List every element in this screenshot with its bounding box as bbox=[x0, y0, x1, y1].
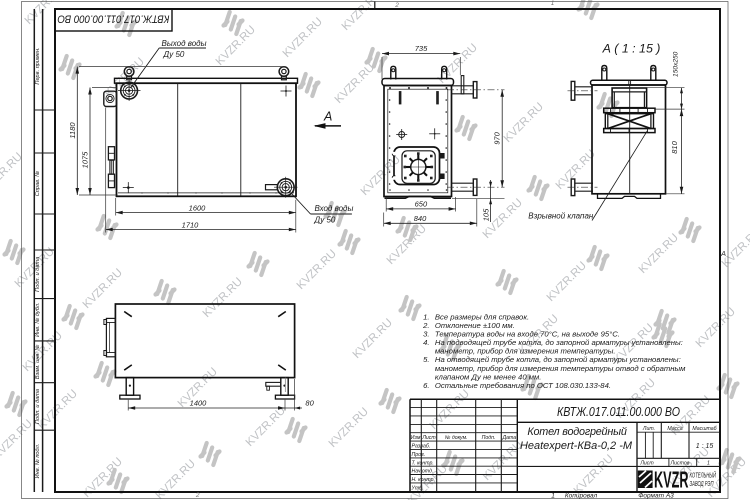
svg-text:Лист: Лист bbox=[639, 460, 654, 466]
svg-text:Выход воды: Выход воды bbox=[162, 39, 207, 48]
svg-text:2: 2 bbox=[195, 492, 200, 499]
svg-text:KVZR.RU: KVZR.RU bbox=[428, 388, 472, 432]
svg-text:Взам. инв. №: Взам. инв. № bbox=[35, 344, 41, 379]
svg-text:А ( 1 : 15 ): А ( 1 : 15 ) bbox=[602, 42, 661, 56]
svg-text:150х250: 150х250 bbox=[673, 51, 680, 77]
svg-text:КОТЕЛЬНЫЙ: КОТЕЛЬНЫЙ bbox=[690, 470, 717, 479]
svg-text:KVZR.RU: KVZR.RU bbox=[333, 62, 377, 106]
svg-text:1600: 1600 bbox=[189, 203, 207, 212]
svg-text:KVZR.RU: KVZR.RU bbox=[340, 0, 384, 33]
svg-text:KVZR.RU: KVZR.RU bbox=[637, 232, 681, 276]
svg-text:КВТЖ.017.011.00.000 ВО: КВТЖ.017.011.00.000 ВО bbox=[557, 404, 680, 419]
svg-text:А: А bbox=[720, 249, 726, 258]
svg-text:6.: 6. bbox=[423, 381, 429, 390]
svg-text:4.: 4. bbox=[423, 338, 429, 347]
svg-text:Подп. и дата: Подп. и дата bbox=[35, 257, 41, 292]
svg-text:Инв. № подл.: Инв. № подл. bbox=[35, 444, 41, 479]
svg-text:1400: 1400 bbox=[190, 399, 208, 408]
svg-text:Копировал: Копировал bbox=[565, 493, 598, 500]
svg-text:Инв. № дубл.: Инв. № дубл. bbox=[35, 302, 41, 336]
svg-text:735: 735 bbox=[415, 44, 428, 53]
svg-text:KVZR.RU: KVZR.RU bbox=[154, 458, 198, 500]
svg-text:Ду 50: Ду 50 bbox=[163, 50, 185, 59]
svg-text:КВТЖ.017.011.00.000 ВО: КВТЖ.017.011.00.000 ВО bbox=[57, 13, 169, 25]
svg-text:Масса: Масса bbox=[667, 426, 682, 432]
svg-text:1710: 1710 bbox=[182, 220, 200, 229]
svg-text:1: 1 bbox=[551, 1, 554, 7]
svg-text:80: 80 bbox=[305, 399, 314, 408]
svg-text:1 : 15: 1 : 15 bbox=[696, 443, 714, 450]
svg-text:KVZR.RU: KVZR.RU bbox=[201, 276, 245, 320]
svg-text:810: 810 bbox=[670, 140, 679, 153]
svg-text:Ду 50: Ду 50 bbox=[314, 216, 336, 225]
svg-text:Вход воды: Вход воды bbox=[315, 204, 354, 213]
svg-text:Листов: Листов bbox=[670, 460, 690, 466]
svg-text:650: 650 bbox=[415, 200, 428, 209]
svg-text:2: 2 bbox=[394, 2, 399, 9]
svg-text:1075: 1075 bbox=[81, 151, 90, 169]
svg-text:Нач.отд.: Нач.отд. bbox=[412, 469, 434, 475]
svg-text:KVZR.RU: KVZR.RU bbox=[436, 42, 480, 86]
svg-text:KVZR.RU: KVZR.RU bbox=[694, 306, 738, 350]
svg-text:Изм: Изм bbox=[411, 435, 421, 441]
svg-text:Лит.: Лит. bbox=[642, 426, 655, 432]
svg-text:Дата: Дата bbox=[501, 435, 516, 441]
svg-text:Пров.: Пров. bbox=[412, 452, 426, 458]
svg-text:А: А bbox=[323, 110, 332, 124]
svg-text:Справ. №: Справ. № bbox=[35, 171, 41, 196]
svg-text:1: 1 bbox=[707, 460, 710, 466]
svg-text:Разраб.: Разраб. bbox=[412, 444, 431, 450]
svg-text:ЗАВОД РЭП: ЗАВОД РЭП bbox=[690, 481, 715, 488]
svg-text:Формат А3: Формат А3 bbox=[638, 493, 674, 500]
svg-text:KVZR.RU: KVZR.RU bbox=[351, 317, 395, 361]
svg-text:№ докум.: № докум. bbox=[445, 435, 468, 441]
svg-text:Утв.: Утв. bbox=[412, 485, 424, 491]
svg-text:KVZR.RU: KVZR.RU bbox=[502, 101, 546, 145]
svg-text:Взрывной клапан: Взрывной клапан bbox=[528, 211, 594, 220]
svg-text:KVZR.RU: KVZR.RU bbox=[327, 406, 371, 450]
svg-text:KVZR.RU: KVZR.RU bbox=[281, 16, 325, 60]
svg-text:5.: 5. bbox=[423, 355, 429, 364]
svg-text:KVZR.RU: KVZR.RU bbox=[481, 439, 525, 483]
svg-text:Подп.: Подп. bbox=[482, 435, 496, 441]
svg-text:KVZR.RU: KVZR.RU bbox=[359, 154, 403, 198]
svg-text:Подп. и дата: Подп. и дата bbox=[35, 389, 41, 424]
svg-text:Масштаб: Масштаб bbox=[692, 426, 717, 432]
svg-text:KVZR.RU: KVZR.RU bbox=[244, 405, 288, 449]
svg-text:Т. контр.: Т. контр. bbox=[412, 460, 434, 466]
svg-text:Лист: Лист bbox=[421, 435, 436, 441]
svg-text:Котел водогрейный: Котел водогрейный bbox=[527, 426, 626, 438]
svg-text:Н. контр.: Н. контр. bbox=[412, 477, 435, 483]
svg-text:1: 1 bbox=[551, 493, 555, 500]
svg-text:KVZR.RU: KVZR.RU bbox=[545, 260, 589, 304]
svg-text:Остальные требования по ОСТ 10: Остальные требования по ОСТ 108.030.133-… bbox=[435, 381, 611, 390]
svg-text:105: 105 bbox=[481, 208, 490, 221]
svg-text:1180: 1180 bbox=[68, 122, 77, 139]
svg-text:970: 970 bbox=[492, 131, 501, 144]
svg-text:Перв. примен.: Перв. примен. bbox=[35, 47, 41, 84]
svg-text:Heatexpert-КВа-0,2 -М: Heatexpert-КВа-0,2 -М bbox=[520, 440, 632, 452]
svg-text:840: 840 bbox=[414, 214, 427, 223]
svg-text:KVZR.RU: KVZR.RU bbox=[0, 418, 35, 462]
svg-text:KVZR.RU: KVZR.RU bbox=[295, 248, 339, 292]
svg-text:KVZR.RU: KVZR.RU bbox=[572, 453, 616, 497]
svg-text:KVZR: KVZR bbox=[654, 467, 689, 493]
svg-text:KVZR.RU: KVZR.RU bbox=[720, 226, 750, 270]
